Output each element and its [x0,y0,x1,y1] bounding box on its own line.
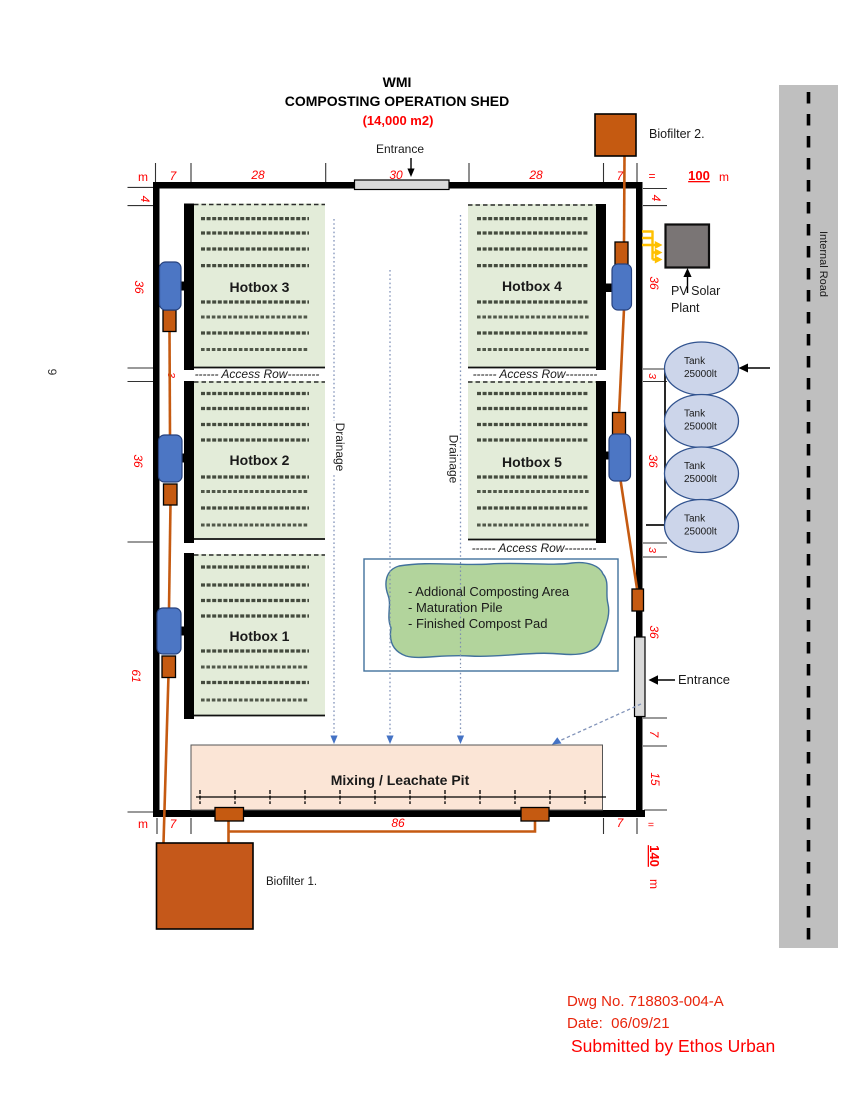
svg-text:28: 28 [250,168,265,182]
svg-text:Entrance: Entrance [678,672,730,687]
svg-text:9: 9 [45,369,59,376]
svg-text:7: 7 [170,169,178,183]
svg-text:Internal Road: Internal Road [817,231,829,297]
svg-text:Dwg No. 718803-004-A: Dwg No. 718803-004-A [567,993,724,1010]
svg-text:Plant: Plant [671,301,700,315]
svg-text:Drainage: Drainage [447,435,461,484]
svg-text:100: 100 [688,168,710,183]
svg-text:7: 7 [617,816,625,830]
svg-text:Drainage: Drainage [333,423,347,472]
svg-text:Biofilter 1.: Biofilter 1. [266,876,317,888]
svg-text:140: 140 [647,845,662,867]
svg-text:- Finished Compost Pad: - Finished Compost Pad [408,616,547,631]
svg-text:4: 4 [138,196,152,203]
svg-text:Tank: Tank [684,409,706,420]
svg-text:4: 4 [649,195,663,202]
svg-text:Tank: Tank [684,514,706,525]
svg-text:Tank: Tank [684,461,706,472]
svg-text:------ Access Row--------: ------ Access Row-------- [472,541,597,555]
svg-text:36: 36 [647,625,661,639]
svg-text:------ Access Row--------: ------ Access Row-------- [473,367,598,381]
svg-text:7: 7 [170,817,178,831]
svg-text:- Addional Composting Area: - Addional Composting Area [408,584,570,599]
svg-text:m: m [138,817,148,831]
svg-text:(14,000 m2): (14,000 m2) [363,113,434,128]
svg-text:Date: 06/09/21: Date: 06/09/21 [567,1015,670,1032]
svg-text:Tank: Tank [684,356,706,367]
svg-text:Biofilter 2.: Biofilter 2. [649,127,705,141]
svg-text:36: 36 [132,280,146,294]
svg-text:=: = [648,169,655,183]
svg-text:36: 36 [647,276,661,290]
svg-text:61: 61 [129,669,143,682]
svg-text:m: m [719,170,729,184]
svg-text:25000lt: 25000lt [684,369,717,380]
svg-text:------ Access Row--------: ------ Access Row-------- [195,367,320,381]
svg-text:COMPOSTING OPERATION SHED: COMPOSTING OPERATION SHED [285,93,510,109]
svg-text:25000lt: 25000lt [684,527,717,538]
svg-text:- Maturation Pile: - Maturation Pile [408,600,503,615]
svg-text:25000lt: 25000lt [684,474,717,485]
svg-text:3: 3 [646,547,658,553]
svg-text:WMI: WMI [383,74,412,90]
svg-text:m: m [138,170,148,184]
svg-text:Entrance: Entrance [376,142,424,156]
svg-text:86: 86 [391,816,405,830]
svg-text:PV Solar: PV Solar [671,284,720,298]
svg-text:Hotbox 4: Hotbox 4 [502,278,562,294]
svg-text:Hotbox 2: Hotbox 2 [230,452,290,468]
svg-text:Hotbox 3: Hotbox 3 [230,279,290,295]
svg-text:25000lt: 25000lt [684,422,717,433]
svg-text:m: m [647,879,661,889]
svg-text:=: = [648,819,654,831]
svg-text:36: 36 [131,454,145,468]
svg-text:Hotbox 1: Hotbox 1 [230,628,290,644]
svg-text:3: 3 [646,373,658,379]
svg-text:15: 15 [648,772,662,786]
svg-text:Submitted by Ethos Urban: Submitted by Ethos Urban [571,1036,775,1056]
svg-text:28: 28 [528,168,543,182]
svg-text:36: 36 [646,454,660,468]
svg-text:Hotbox 5: Hotbox 5 [502,454,562,470]
svg-text:Mixing / Leachate Pit: Mixing / Leachate Pit [331,772,470,788]
svg-text:7: 7 [647,731,661,739]
